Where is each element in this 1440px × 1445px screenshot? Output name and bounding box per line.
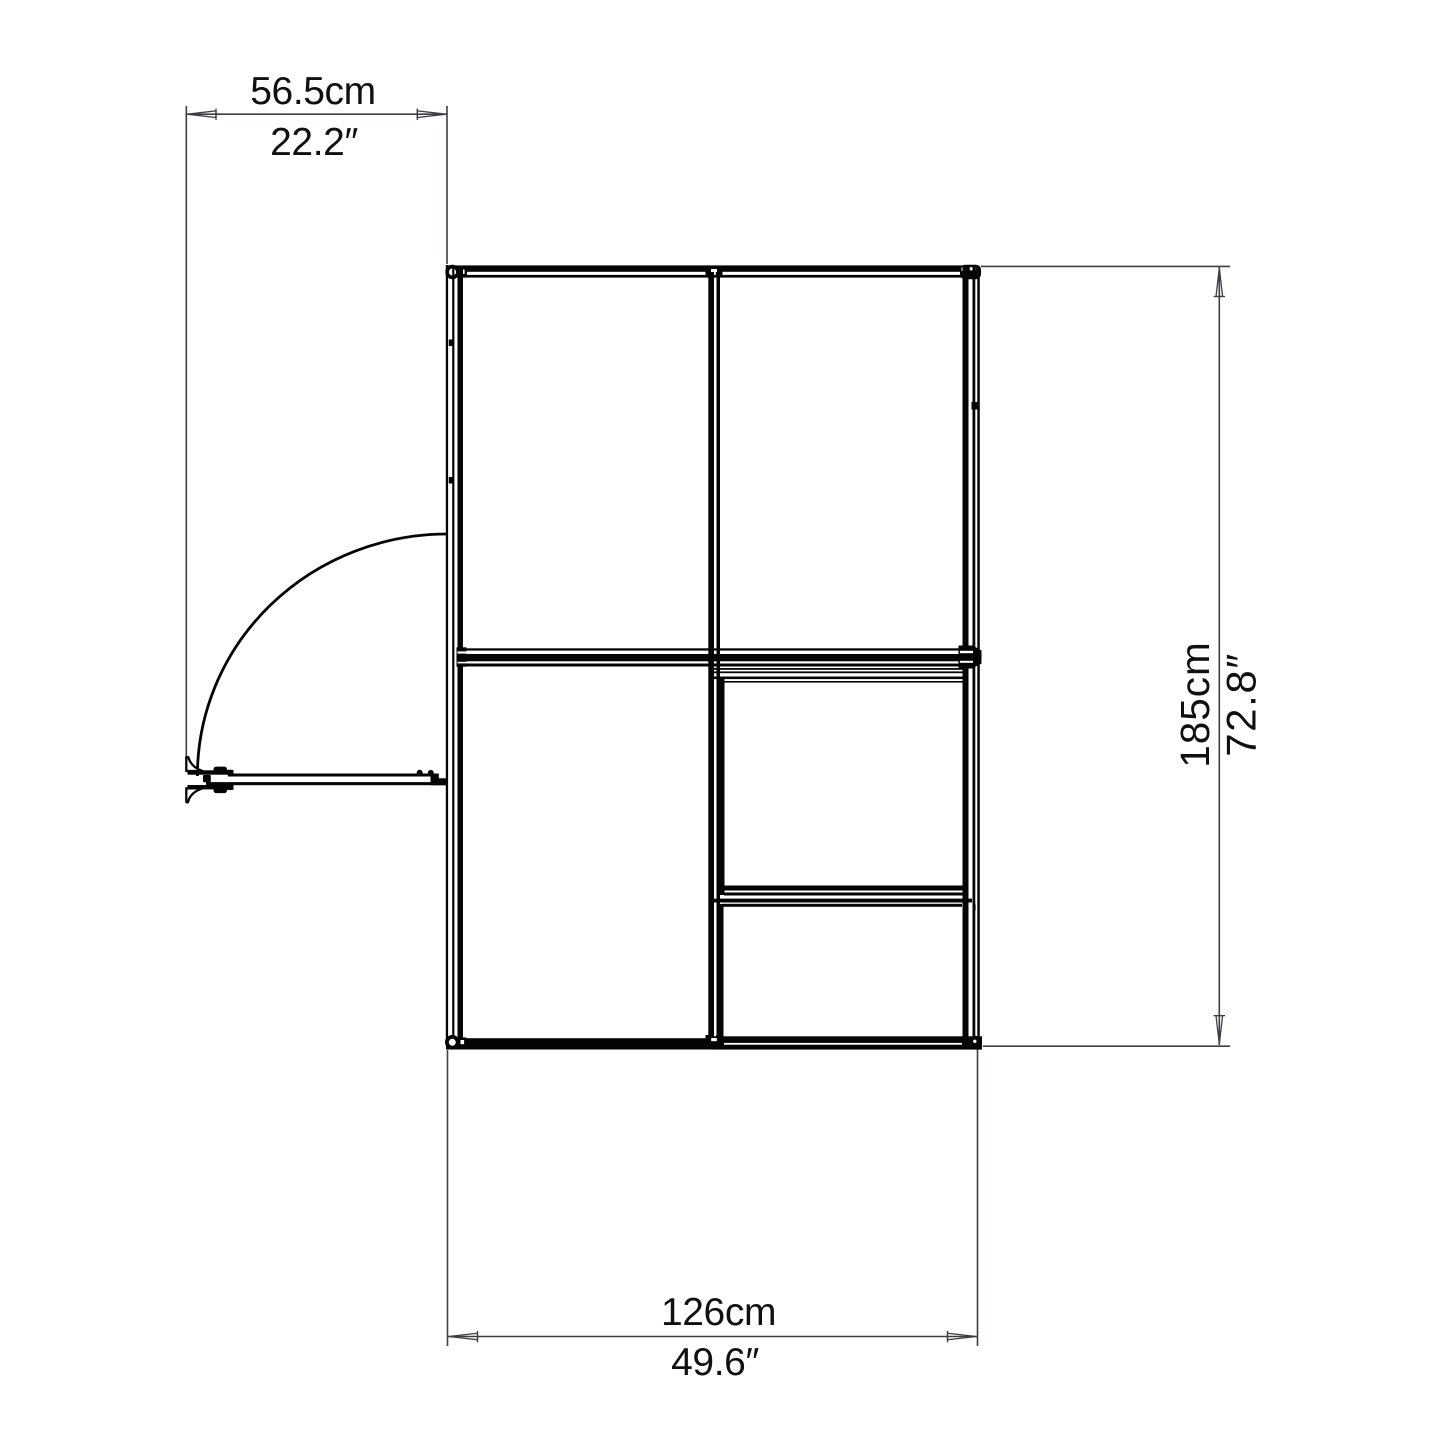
svg-text:72.8″: 72.8″	[1218, 652, 1265, 757]
svg-text:126cm: 126cm	[661, 1291, 776, 1334]
svg-text:22.2″: 22.2″	[270, 121, 358, 164]
svg-text:49.6″: 49.6″	[671, 1341, 759, 1384]
svg-text:185cm: 185cm	[1172, 641, 1218, 768]
svg-text:56.5cm: 56.5cm	[250, 70, 376, 113]
